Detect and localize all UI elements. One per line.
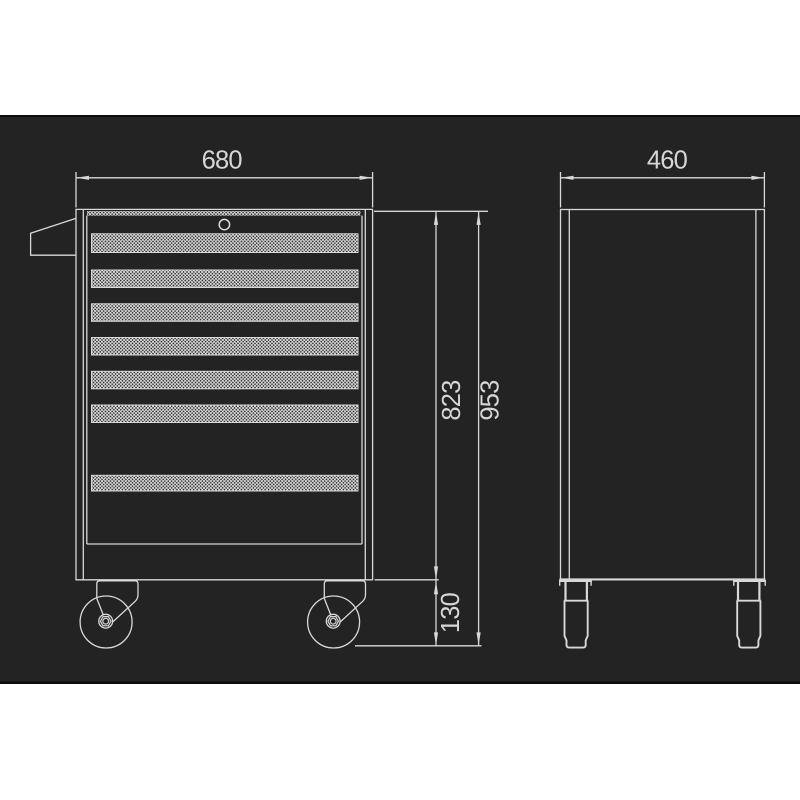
svg-text:680: 680 <box>202 147 243 175</box>
svg-text:460: 460 <box>647 147 688 175</box>
svg-text:953: 953 <box>477 380 505 421</box>
svg-text:130: 130 <box>437 592 465 633</box>
svg-text:823: 823 <box>438 380 466 421</box>
